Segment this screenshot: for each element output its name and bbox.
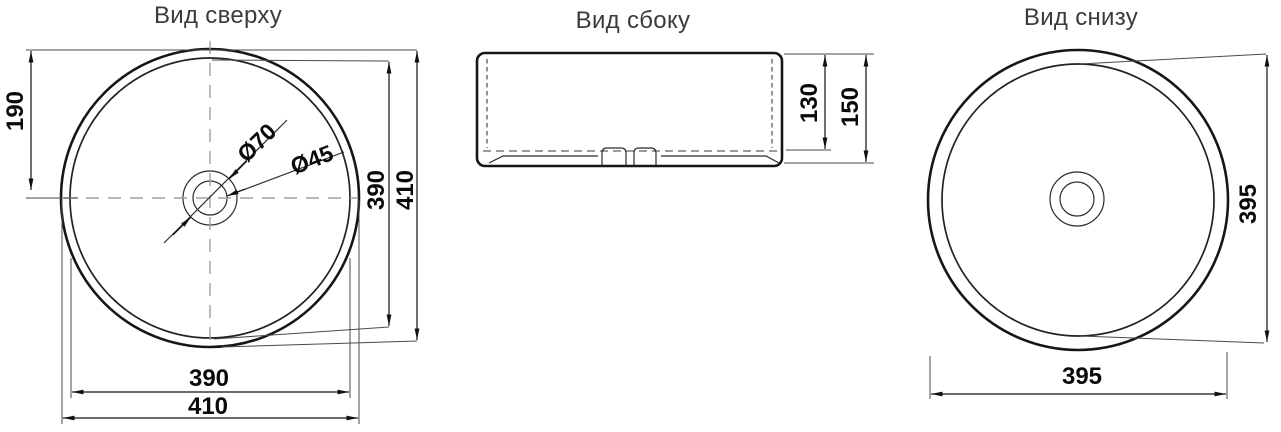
technical-drawing-sink: Вид сверху Вид сбоку Вид снизу 190 390 4… — [0, 0, 1281, 432]
bottom-drain-hole-circle — [1060, 182, 1094, 216]
side-view-title: Вид сбоку — [576, 9, 691, 33]
dim-label-410-horizontal: 410 — [188, 395, 228, 419]
dim-label-390-vertical: 390 — [365, 170, 389, 210]
dim-label-390-horizontal: 390 — [189, 367, 229, 391]
bottom-drain-outer-circle — [1050, 172, 1104, 226]
dim-label-130: 130 — [798, 83, 822, 123]
side-base-right — [661, 156, 779, 163]
bottom-view — [928, 50, 1267, 399]
top-view-title: Вид сверху — [154, 4, 282, 28]
bottom-outer-circle — [928, 50, 1228, 350]
side-body-outline — [477, 53, 782, 166]
dim-label-150: 150 — [839, 87, 863, 127]
dim-label-410-vertical: 410 — [394, 170, 418, 210]
bottom-view-title: Вид снизу — [1024, 6, 1138, 30]
dim-label-395-horizontal: 395 — [1062, 365, 1102, 389]
dim-label-395-vertical: 395 — [1237, 184, 1261, 224]
dim-label-190: 190 — [4, 91, 28, 131]
bottom-base-ring-circle — [942, 64, 1214, 336]
side-base-left — [489, 156, 598, 163]
